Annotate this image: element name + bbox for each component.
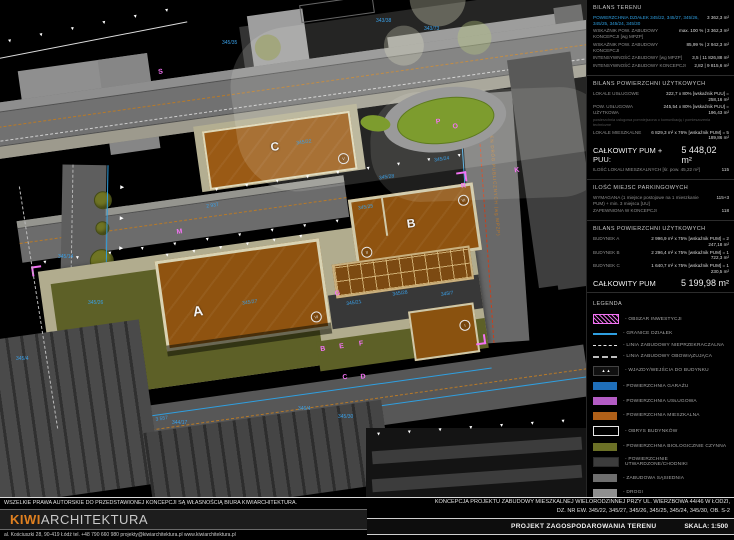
legend-title: LEGENDA xyxy=(593,301,729,307)
setback-line-swatch xyxy=(593,345,617,346)
legend-item: - POWIERZCHNIE UTWARDZONE/CHODNIKI xyxy=(593,457,729,467)
paved-surface-swatch xyxy=(593,457,619,467)
entrance-number-badge: VI xyxy=(457,194,469,206)
section-title: ILOŚĆ MIEJSC PARKINGOWYCH xyxy=(593,185,729,191)
logo-kiwi: KIWI xyxy=(10,512,41,527)
title-block-left: WSZELKIE PRAWA AUTORSKIE DO PRZEDSTAWION… xyxy=(0,497,367,540)
legend-item: ▲ ▲- WJAZDY/WEJŚCIA DO BUDYNKU xyxy=(593,366,729,376)
site-corner-bracket xyxy=(456,171,467,182)
legend-item: - ZABUDOWA SĄSIEDNIA xyxy=(593,474,729,482)
residential-area-swatch xyxy=(593,412,617,420)
row-label: INTENSYWNOŚĆ ZABUDOWY [wg MPZP] xyxy=(593,55,687,61)
legend-item: - GRANICE DZIAŁEK xyxy=(593,331,729,336)
row-label: WYMAGANA (1 miejsce postojowe na 1 miesz… xyxy=(593,195,711,206)
company-logo: KIWIARCHITEKTURA xyxy=(0,510,367,530)
legend-item: - POWIERZCHNIA MIESZKALNA xyxy=(593,412,729,420)
parcel-label: 345/14 xyxy=(58,254,73,260)
boundary-point-letter: F xyxy=(359,340,364,348)
bio-active-swatch xyxy=(593,443,617,451)
row-value: 245,54 x 80% [wskaźnik PUU] = 196,43 m² xyxy=(651,104,729,115)
project-title-line1: KONCEPCJA PROJEKTU ZABUDOWY MIESZKALNEJ … xyxy=(367,498,734,507)
section-title: BILANS POWIERZCHNI UŻYTKOWYCH xyxy=(593,226,729,232)
boundary-point-letter: C xyxy=(342,374,348,382)
building-c-label: C xyxy=(270,139,281,154)
neighbor-row xyxy=(372,465,582,493)
building-b-wall xyxy=(381,198,388,236)
parcel-label: 345/4 xyxy=(16,356,29,362)
boundary-point-letter: K xyxy=(514,167,520,175)
building-b-label: B xyxy=(406,216,417,231)
building-a-label: A xyxy=(192,302,204,319)
section-title: BILANS POWIERZCHNI UŻYTKOWYCH xyxy=(593,81,729,87)
entrance-number-badge: VI xyxy=(310,311,322,323)
info-panel: BILANS TERENU POWIERZCHNIA DZIAŁEK 345/2… xyxy=(586,0,734,497)
logo-architektura: ARCHITEKTURA xyxy=(41,512,148,527)
neighbor-row xyxy=(372,437,582,465)
project-title-line2: DZ. NR EW. 345/22, 345/27, 345/26, 345/2… xyxy=(367,507,734,516)
boundary-point-letter: B xyxy=(320,346,326,354)
row-label: BUDYNEK C xyxy=(593,263,646,274)
row-value: 115+3 xyxy=(716,195,729,206)
row-label: ZAPEWNIONA W KONCEPCJI xyxy=(593,208,717,214)
boundary-point-letter: M xyxy=(176,228,183,236)
parcel-label: 345/27 xyxy=(242,299,258,307)
neighbor-buildings-swatch xyxy=(593,474,617,482)
entry-arrows-icon: ▲ ▲ xyxy=(593,366,619,376)
row-label: WSKAŹNIK POW. ZABUDOWY KONCEPCJI xyxy=(593,42,681,53)
site-plan: ▼▼▼▼▼▼ xyxy=(0,0,586,497)
parcel-label: 345/26 xyxy=(88,300,103,306)
tree-icon xyxy=(94,191,112,209)
row-label: LOKALE MIESZKALNE xyxy=(593,130,646,141)
boundary-point-letter: G xyxy=(334,290,340,298)
row-value: 3,5 | 11 826,88 m² xyxy=(692,55,729,61)
parking-lot-hatched xyxy=(0,319,162,497)
neighbor-block-dark: ▼▼▼▼▼▼▼ xyxy=(366,428,586,497)
legend-item: - OBRYS BUDYNKÓW xyxy=(593,426,729,436)
copyright-note: WSZELKIE PRAWA AUTORSKIE DO PRZEDSTAWION… xyxy=(0,498,367,510)
drawing-name: PROJEKT ZAGOSPODAROWANIA TERENU xyxy=(511,523,656,530)
boundary-point-letter: R xyxy=(461,182,467,190)
boundary-point-letter: O xyxy=(452,123,458,131)
total-value: 5 448,02 m² xyxy=(681,145,729,165)
panel-bilans-budynki: BILANS POWIERZCHNI UŻYTKOWYCH BUDYNEK A2… xyxy=(587,221,734,293)
entrance-number-badge: II xyxy=(361,246,373,258)
parcel-label: 345/35 xyxy=(222,40,237,46)
legend-item: - POWIERZCHNIA BIOLOGICZNIE CZYNNA xyxy=(593,443,729,451)
survey-marks-strip: ▼▼▼▼▼▼ xyxy=(7,8,170,44)
company-address: al. Kościuszki 28, 90-419 Łódź tel. +48 … xyxy=(0,530,367,540)
row-label: WSKAŹNIK POW. ZABUDOWY KONCEPCJI [wg MPZ… xyxy=(593,28,674,39)
legend-item: - LINIA ZABUDOWY NIEPRZEKRACZALNA xyxy=(593,343,729,348)
roads-swatch xyxy=(593,489,617,497)
parcel-label: 343/38 xyxy=(376,18,391,24)
legend-item: - LINIA ZABUDOWY OBOWIĄZUJĄCA xyxy=(593,354,729,359)
legend-item: - OBSZAR INWESTYCJI xyxy=(593,314,729,324)
title-block-right: KONCEPCJA PROJEKTU ZABUDOWY MIESZKALNEJ … xyxy=(367,497,734,540)
row-value: 2 996,9 m² x 75% [wskaźnik PUM] = 2 247,… xyxy=(651,236,729,247)
drawing-name-bar: PROJEKT ZAGOSPODAROWANIA TERENU SKALA: 1… xyxy=(367,518,734,535)
panel-parking: ILOŚĆ MIEJSC PARKINGOWYCH WYMAGANA (1 mi… xyxy=(587,180,734,221)
row-value: 2,82 | 9 815,6 m² xyxy=(694,63,729,69)
building-se-block: I xyxy=(408,302,480,361)
boundary-point-letter: D xyxy=(360,373,366,381)
parcel-label: 345/25 xyxy=(358,203,374,211)
parcel-label: 344/17 xyxy=(172,420,187,426)
row-label: LOKALE USŁUGOWE xyxy=(593,91,646,102)
units-label: ILOŚĆ LOKALI MIESZKALNYCH [śr. pow. 45,2… xyxy=(593,167,717,173)
area-value: 3 362,3 m² xyxy=(707,15,729,26)
row-value: 322,7 x 80% [wskaźnik PUU] = 258,16 m² xyxy=(651,91,729,102)
row-value: 85,99 % | 2 942,3 m² xyxy=(686,42,729,53)
row-value: 6 829,3 m² x 76% [wskaźnik PUM] = 5 189,… xyxy=(651,130,729,141)
units-value: 115 xyxy=(722,167,729,173)
legend-item: - POWIERZCHNIA GARAŻU xyxy=(593,382,729,390)
garage-area-swatch xyxy=(593,382,617,390)
drawing-scale: SKALA: 1:500 xyxy=(684,523,728,530)
total-value: 5 199,98 m² xyxy=(681,278,729,288)
service-area-swatch xyxy=(593,397,617,405)
panel-bilans-pum: BILANS POWIERZCHNI UŻYTKOWYCH LOKALE USŁ… xyxy=(587,76,734,180)
row-value: 1 640,7 m² x 75% [wskaźnik PUM] = 1 230,… xyxy=(651,263,729,274)
row-label: BUDYNEK B xyxy=(593,250,646,261)
boundary-point-letter: P xyxy=(435,118,441,126)
section-title: BILANS TERENU xyxy=(593,5,729,11)
row-label: INTENSYWNOŚĆ ZABUDOWY KONCEPCJI xyxy=(593,63,689,69)
panel-bilans-terenu: BILANS TERENU POWIERZCHNIA DZIAŁEK 345/2… xyxy=(587,0,734,76)
parcel-label: 343/73 xyxy=(424,26,439,32)
building-outline-swatch xyxy=(593,426,619,436)
legend-item: - POWIERZCHNIA USŁUGOWA xyxy=(593,397,729,405)
boundary-point-letter: E xyxy=(339,343,345,351)
parcel-boundary-swatch xyxy=(593,333,617,335)
investment-area-swatch xyxy=(593,314,619,324)
area-parcels-label: POWIERZCHNIA DZIAŁEK 345/22, 345/27, 345… xyxy=(593,15,702,26)
row-value: 2 296,4 m² x 75% [wskaźnik PUM] = 1 722,… xyxy=(651,250,729,261)
total-label: CAŁKOWITY PUM + PUU: xyxy=(593,146,681,164)
drawing-sheet: ▼▼▼▼▼▼ xyxy=(0,0,734,540)
site-corner-bracket xyxy=(475,334,486,345)
row-label: BUDYNEK A xyxy=(593,236,646,247)
footnote: powierzchnia usługowa pomniejszona o kom… xyxy=(593,118,729,128)
row-label: POW. USŁUGOWA UŻYTKOWA xyxy=(593,104,646,115)
boundary-point-letter: S xyxy=(158,68,164,76)
parcel-label: 346/4 xyxy=(298,406,311,412)
row-value: max. 100 % | 3 362,3 m² xyxy=(679,28,729,39)
legend-item: - DROGI xyxy=(593,489,729,497)
entrance-number-badge: I xyxy=(459,319,471,331)
total-label: CAŁKOWITY PUM xyxy=(593,279,656,288)
building-line-swatch xyxy=(593,356,617,358)
row-value: 118 xyxy=(722,208,729,214)
parcel-label: 345/30 xyxy=(338,414,353,420)
